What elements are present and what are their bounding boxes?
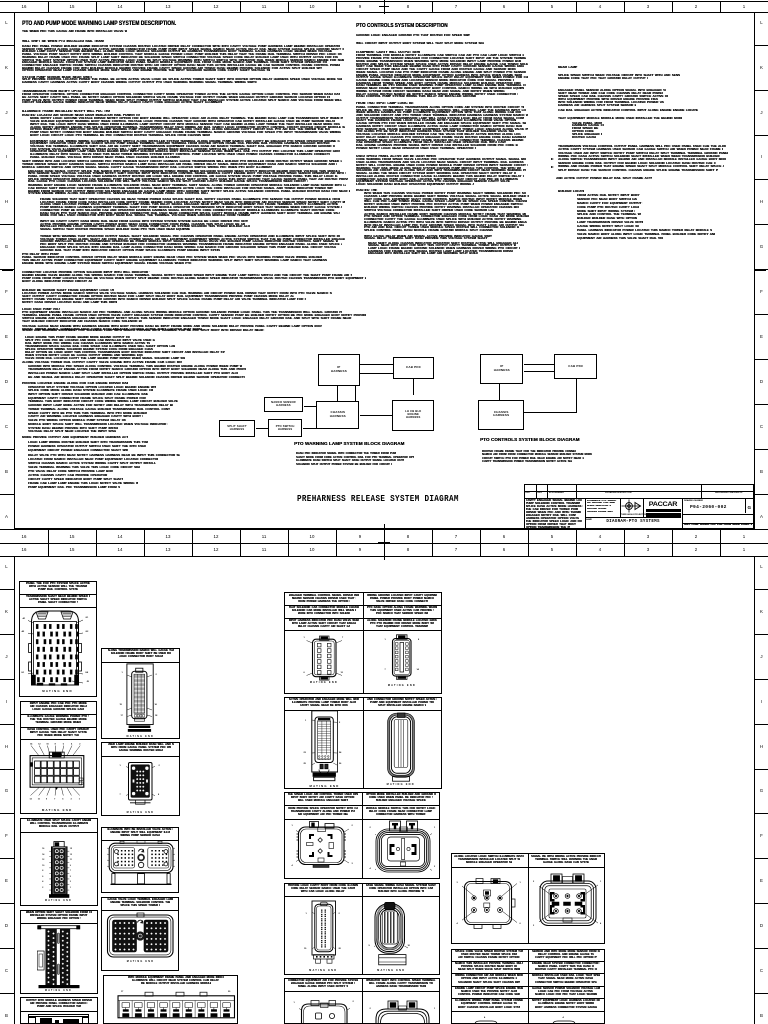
svg-text:5: 5 xyxy=(62,798,64,800)
svg-text:14: 14 xyxy=(30,742,33,745)
svg-text:9: 9 xyxy=(46,798,48,800)
svg-text:1: 1 xyxy=(78,798,80,800)
svg-text:11: 11 xyxy=(37,798,40,800)
svg-text:13: 13 xyxy=(29,798,32,800)
svg-text:7: 7 xyxy=(54,798,56,800)
svg-text:3: 3 xyxy=(70,798,72,800)
